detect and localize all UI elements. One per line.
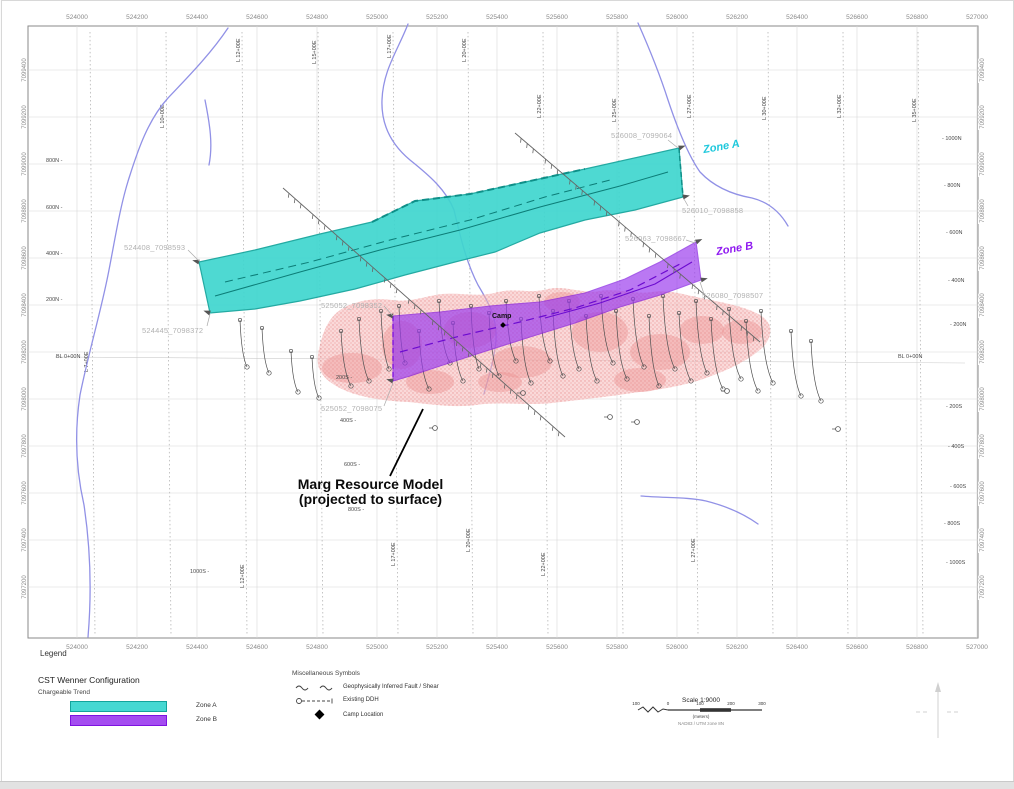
map-canvas: 5240005240005242005242005244005244005246… [0,0,1014,789]
svg-text:526600: 526600 [846,644,868,651]
resource-model-annotation: Marg Resource Model (projected to surfac… [288,477,453,507]
svg-text:526200: 526200 [726,644,748,651]
svg-text:7098400: 7098400 [22,293,28,317]
svg-text:525400: 525400 [486,14,508,21]
svg-text:524800: 524800 [306,14,328,21]
survey-line-label: L 32+00E [837,94,843,118]
svg-text:L 12+00E: L 12+00E [240,564,246,588]
svg-text:526400: 526400 [786,644,808,651]
survey-line-label: L 27+00E [687,94,693,118]
annotation-line1: Marg Resource Model [288,477,453,492]
misc-camp-label: Camp Location [343,712,383,718]
svg-text:7098200: 7098200 [980,340,986,364]
misc-symbols-title: Miscellaneous Symbols [292,670,360,677]
svg-text:524400: 524400 [186,14,208,21]
svg-text:7098600: 7098600 [22,246,28,270]
svg-text:525600: 525600 [546,644,568,651]
svg-text:L 17+00E: L 17+00E [391,542,397,566]
survey-line-label: L 15+00E [312,40,318,64]
legend-section-title: CST Wenner Configuration [38,675,140,685]
zone-a-swatch-label: Zone A [196,702,217,709]
svg-text:7099400: 7099400 [980,58,986,82]
survey-line-label: L 35+00E [912,98,918,122]
window-bottom-strip [0,781,1014,789]
fault-shear-icon [294,684,340,692]
svg-text:7098400: 7098400 [980,293,986,317]
svg-text:L 20+00E: L 20+00E [466,528,472,552]
svg-text:7097800: 7097800 [22,434,28,458]
svg-text:525800: 525800 [606,14,628,21]
svg-text:524200: 524200 [126,14,148,21]
svg-text:7098800: 7098800 [22,199,28,223]
svg-text:526600: 526600 [846,14,868,21]
svg-text:526000: 526000 [666,644,688,651]
svg-text:524000: 524000 [66,644,88,651]
zone-b-swatch-label: Zone B [196,716,217,723]
svg-text:525000: 525000 [366,644,388,651]
survey-line-label: L 22+00E [537,94,543,118]
svg-text:7097600: 7097600 [22,481,28,505]
survey-line-label: L 25+00E [612,98,618,122]
svg-text:7098200: 7098200 [22,340,28,364]
scale-units: (meters) [636,714,766,719]
svg-text:7098800: 7098800 [980,199,986,223]
survey-line-label: L 12+00E [236,38,242,62]
svg-text:525800: 525800 [606,644,628,651]
svg-text:L 27+00E: L 27+00E [691,538,697,562]
svg-text:7097200: 7097200 [22,575,28,599]
svg-text:524200: 524200 [126,644,148,651]
svg-text:525200: 525200 [426,644,448,651]
legend-section-subtitle: Chargeable Trend [38,689,90,696]
scale-title: Scale 1:9000 [636,697,766,704]
svg-text:7097800: 7097800 [980,434,986,458]
svg-text:7097400: 7097400 [980,528,986,552]
svg-text:525400: 525400 [486,644,508,651]
svg-text:7097600: 7097600 [980,481,986,505]
svg-text:524600: 524600 [246,644,268,651]
svg-text:7099000: 7099000 [22,152,28,176]
svg-text:7098600: 7098600 [980,246,986,270]
survey-line-label: L 30+00E [762,96,768,120]
svg-text:525600: 525600 [546,14,568,21]
zone-b-swatch [70,715,167,726]
svg-text:7099000: 7099000 [980,152,986,176]
svg-text:524400: 524400 [186,644,208,651]
svg-text:524000: 524000 [66,14,88,21]
svg-text:7098000: 7098000 [22,387,28,411]
legend-title: Legend [40,649,67,658]
svg-text:524800: 524800 [306,644,328,651]
svg-text:526200: 526200 [726,14,748,21]
svg-text:526400: 526400 [786,14,808,21]
svg-text:7098000: 7098000 [980,387,986,411]
north-arrow-icon [916,682,960,738]
misc-ddh-label: Existing DDH [343,697,379,703]
svg-text:524600: 524600 [246,14,268,21]
svg-text:7097200: 7097200 [980,575,986,599]
zone-a-swatch [70,701,167,712]
svg-text:7099400: 7099400 [22,58,28,82]
survey-line-label: L 20+00E [462,38,468,62]
annotation-line2: (projected to surface) [288,492,453,507]
svg-text:526000: 526000 [666,14,688,21]
svg-text:525200: 525200 [426,14,448,21]
svg-text:525000: 525000 [366,14,388,21]
svg-text:526800: 526800 [906,644,928,651]
misc-fault-label: Geophysically Inferred Fault / Shear [343,684,439,690]
map-page: 5240005240005242005242005244005244005246… [0,0,1014,789]
survey-line-label: L 17+00E [387,34,393,58]
existing-ddh-icon [294,697,340,705]
scale-datum: NAD83 / UTM zone 8N [636,721,766,726]
svg-text:527000: 527000 [966,14,988,21]
svg-text:7097400: 7097400 [22,528,28,552]
svg-text:L 22+00E: L 22+00E [541,552,547,576]
svg-text:526800: 526800 [906,14,928,21]
svg-text:527000: 527000 [966,644,988,651]
svg-text:7099200: 7099200 [980,105,986,129]
svg-text:7099200: 7099200 [22,105,28,129]
